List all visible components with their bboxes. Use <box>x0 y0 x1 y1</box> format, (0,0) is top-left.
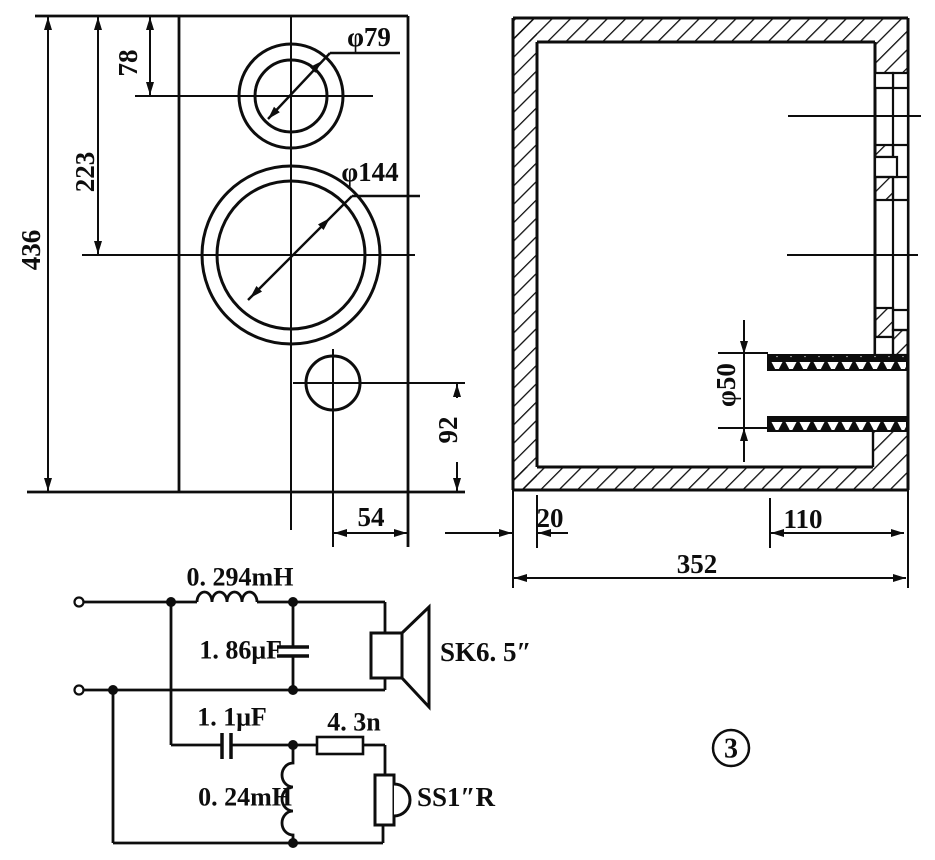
tweeter-diameter-label: φ79 <box>347 22 391 52</box>
woofer-inductor-label: 0. 294mH <box>187 563 294 592</box>
input-terminal-positive <box>75 598 84 607</box>
woofer-inductor-coil <box>197 592 257 602</box>
dim-overall-height: 436 <box>16 230 46 271</box>
tweeter-capacitor-label: 1. 1μF <box>197 703 267 732</box>
input-terminal-negative <box>75 686 84 695</box>
dim-tweeter-offset: 78 <box>113 50 143 77</box>
tweeter-capacitor-symbol <box>222 733 231 759</box>
woofer-diameter-leader <box>248 196 420 300</box>
dim-wall-thickness: 20 <box>537 503 564 533</box>
woofer-capacitor-label: 1. 86μF <box>199 636 282 665</box>
baffle-block-hatch <box>875 145 893 157</box>
tweeter-inductor-label: 0. 24mH <box>198 783 292 812</box>
port-tube-top-wall <box>768 355 907 370</box>
baffle-block-hatch <box>893 330 908 355</box>
dim-port-height: 92 <box>433 417 463 444</box>
woofer-model-label: SK6. 5″ <box>440 637 531 667</box>
top-wall-hatch <box>513 18 908 42</box>
dim-port-length: 110 <box>783 504 822 534</box>
front-board-edge <box>893 73 908 330</box>
tweeter-model-label: SS1″R <box>417 782 495 812</box>
side-dimension-arrows <box>499 341 906 582</box>
front-view <box>27 16 465 547</box>
tweeter-symbol <box>375 775 410 825</box>
port-tube-bottom-wall <box>768 417 907 431</box>
back-wall-hatch <box>513 18 537 490</box>
port-rabbet-block <box>875 337 893 355</box>
bottom-wall-hatch <box>513 467 908 490</box>
dim-overall-depth: 352 <box>677 549 718 579</box>
tweeter-diameter-leader <box>268 53 400 119</box>
mid-rabbet-block <box>875 157 897 177</box>
woofer-diameter-label: φ144 <box>341 157 398 187</box>
tweeter-resistor-label: 4. 3n <box>327 708 381 737</box>
dim-port-offset: 54 <box>358 502 385 532</box>
drawing-canvas: 436 223 78 92 54 φ79 φ144 <box>0 0 935 860</box>
top-front-corner-hatch <box>875 42 908 73</box>
woofer-symbol <box>371 607 429 707</box>
speaker-technical-drawing: 436 223 78 92 54 φ79 φ144 <box>0 0 935 860</box>
crossover-labels: 0. 294mH 1. 86μF 1. 1μF 4. 3n 0. 24mH SK… <box>187 563 532 813</box>
tweeter-rabbet-block <box>875 73 893 88</box>
figure-number-badge: 3 <box>713 730 749 766</box>
side-section-view <box>445 18 921 588</box>
figure-number-text: 3 <box>724 734 738 765</box>
dim-woofer-offset: 223 <box>70 152 100 193</box>
tweeter-resistor-symbol <box>317 737 363 754</box>
baffle-block-hatch <box>875 308 893 337</box>
front-dimension-lines <box>48 16 457 533</box>
port-diameter-label: φ50 <box>711 363 741 407</box>
baffle-block-hatch <box>875 177 893 200</box>
bottom-front-corner-hatch <box>873 429 908 467</box>
